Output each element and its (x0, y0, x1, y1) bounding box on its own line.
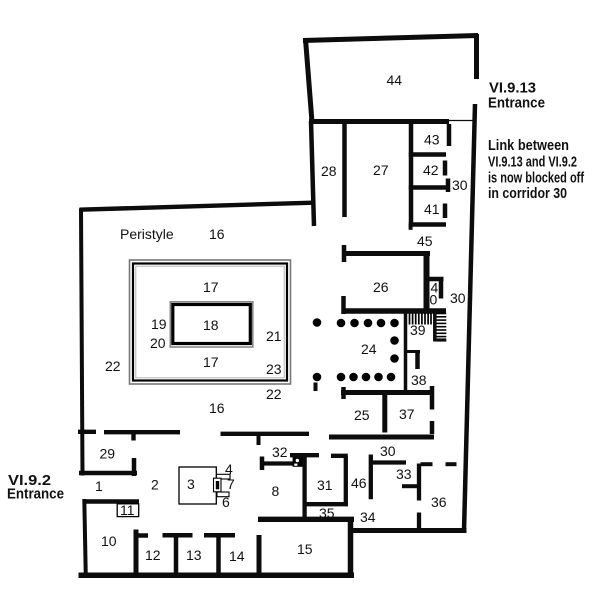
svg-text:26: 26 (373, 279, 389, 295)
svg-text:42: 42 (423, 162, 439, 178)
svg-text:34: 34 (360, 509, 376, 525)
svg-text:21: 21 (266, 328, 282, 344)
svg-text:Peristyle: Peristyle (120, 226, 174, 242)
svg-text:36: 36 (431, 494, 447, 510)
svg-text:38: 38 (411, 372, 427, 388)
svg-text:44: 44 (387, 72, 403, 88)
svg-text:16: 16 (209, 400, 225, 416)
svg-text:46: 46 (351, 475, 367, 491)
svg-text:33: 33 (396, 466, 412, 482)
svg-text:11: 11 (120, 502, 135, 518)
svg-text:43: 43 (424, 132, 440, 148)
svg-text:in corridor 30: in corridor 30 (488, 186, 567, 202)
svg-text:39: 39 (410, 322, 426, 338)
svg-text:15: 15 (297, 541, 313, 557)
svg-text:17: 17 (203, 279, 219, 295)
svg-text:22: 22 (266, 386, 282, 402)
svg-text:28: 28 (321, 163, 337, 179)
svg-text:37: 37 (399, 406, 415, 422)
svg-text:16: 16 (209, 226, 225, 242)
svg-text:VI.9.13 and VI.9.2: VI.9.13 and VI.9.2 (488, 155, 577, 171)
svg-text:is now blocked off: is now blocked off (488, 171, 584, 187)
svg-text:4: 4 (225, 461, 233, 477)
svg-text:41: 41 (424, 201, 440, 217)
svg-text:45: 45 (417, 233, 433, 249)
svg-text:24: 24 (361, 341, 377, 357)
svg-text:Link between: Link between (488, 138, 569, 154)
svg-text:22: 22 (105, 358, 121, 374)
svg-text:30: 30 (452, 177, 468, 193)
svg-text:23: 23 (266, 361, 282, 377)
svg-text:10: 10 (101, 533, 117, 549)
svg-text:Entrance: Entrance (7, 487, 64, 503)
svg-text:30: 30 (380, 443, 396, 459)
svg-text:20: 20 (150, 335, 166, 351)
svg-text:29: 29 (100, 446, 116, 462)
svg-text:19: 19 (151, 316, 167, 332)
svg-text:3: 3 (187, 476, 195, 492)
svg-text:VI.9.13: VI.9.13 (489, 81, 536, 97)
svg-text:14: 14 (229, 548, 245, 564)
svg-text:25: 25 (354, 407, 370, 423)
svg-text:18: 18 (203, 317, 219, 333)
svg-text:2: 2 (151, 477, 159, 493)
svg-text:13: 13 (186, 547, 202, 563)
svg-text:0: 0 (430, 292, 438, 308)
svg-text:1: 1 (95, 478, 103, 494)
svg-text:Entrance: Entrance (488, 96, 545, 112)
svg-text:27: 27 (373, 162, 389, 178)
svg-text:31: 31 (317, 477, 333, 493)
svg-text:6: 6 (222, 494, 230, 510)
svg-text:12: 12 (145, 547, 161, 563)
svg-text:30: 30 (450, 290, 466, 306)
svg-text:7: 7 (227, 476, 235, 492)
svg-text:17: 17 (203, 354, 219, 370)
svg-text:32: 32 (272, 444, 288, 460)
svg-text:35: 35 (319, 505, 335, 521)
svg-text:8: 8 (272, 483, 280, 499)
